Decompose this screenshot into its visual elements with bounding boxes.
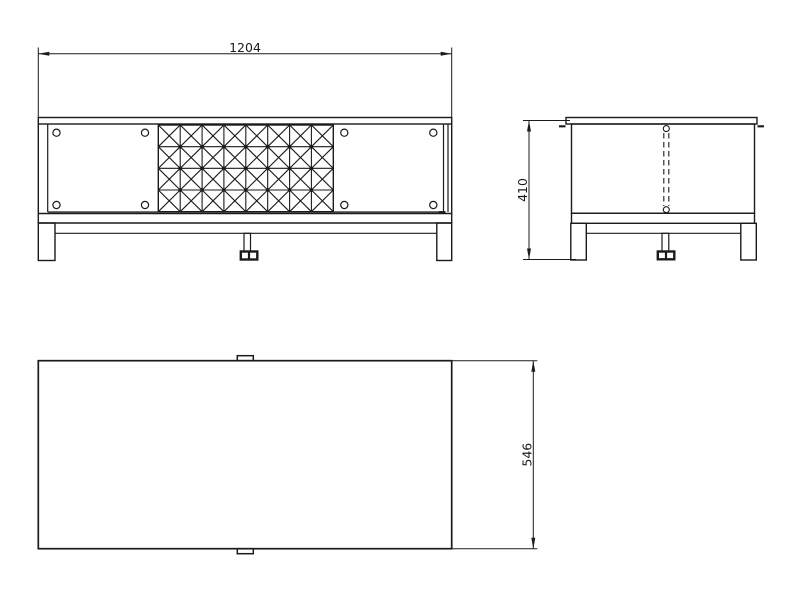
center-tab-front — [237, 549, 253, 554]
foot-stem — [662, 233, 669, 251]
top-view: 546 — [38, 356, 537, 554]
side-body-panel — [572, 124, 755, 213]
top-view-outline — [38, 361, 451, 549]
door-hole — [430, 201, 437, 208]
door-hole — [141, 201, 148, 208]
front-width-extension-lines — [38, 48, 451, 118]
front-view: 1204 — [38, 40, 451, 261]
front-top-panel — [38, 118, 451, 125]
side-height-arrow-bottom — [527, 249, 531, 260]
technical-drawing-sheet: 1204 — [0, 0, 800, 600]
door-hole — [341, 129, 348, 136]
top-depth-arrow-top — [531, 361, 535, 372]
side-height-arrow-top — [527, 121, 531, 132]
side-bottom-rail — [572, 213, 755, 223]
front-width-arrow-right — [441, 52, 452, 56]
side-height-label: 410 — [515, 178, 530, 202]
door-hole — [430, 129, 437, 136]
side-right-leg — [741, 223, 757, 260]
dowel-hole-bottom — [663, 207, 669, 213]
front-width-dimension: 1204 — [38, 40, 451, 118]
front-right-leg — [437, 223, 452, 261]
side-view: 410 — [515, 118, 764, 261]
door-hole — [341, 201, 348, 208]
top-depth-dimension: 546 — [452, 361, 538, 549]
side-adjustable-foot — [658, 233, 675, 259]
door-hole — [53, 129, 60, 136]
front-width-label: 1204 — [229, 40, 261, 55]
foot-stem — [244, 233, 251, 251]
door-hole — [53, 201, 60, 208]
side-height-extension-lines — [523, 121, 576, 260]
door-hole — [141, 129, 148, 136]
front-width-arrow-left — [38, 52, 49, 56]
side-height-dimension: 410 — [515, 121, 576, 260]
side-left-leg — [571, 223, 587, 260]
side-top-panel — [566, 118, 757, 125]
dowel-dashed-lines — [664, 133, 669, 206]
dowel-hole-top — [663, 126, 669, 132]
top-depth-arrow-bottom — [531, 538, 535, 549]
top-depth-label: 546 — [519, 443, 534, 467]
center-tab-back — [237, 356, 253, 361]
drawing-svg: 1204 — [0, 0, 800, 600]
front-adjustable-foot — [241, 233, 257, 259]
front-carcass-outline — [38, 124, 451, 223]
lattice-cells — [158, 125, 333, 212]
side-hidden-dowel — [663, 126, 669, 213]
front-left-leg — [38, 223, 55, 261]
